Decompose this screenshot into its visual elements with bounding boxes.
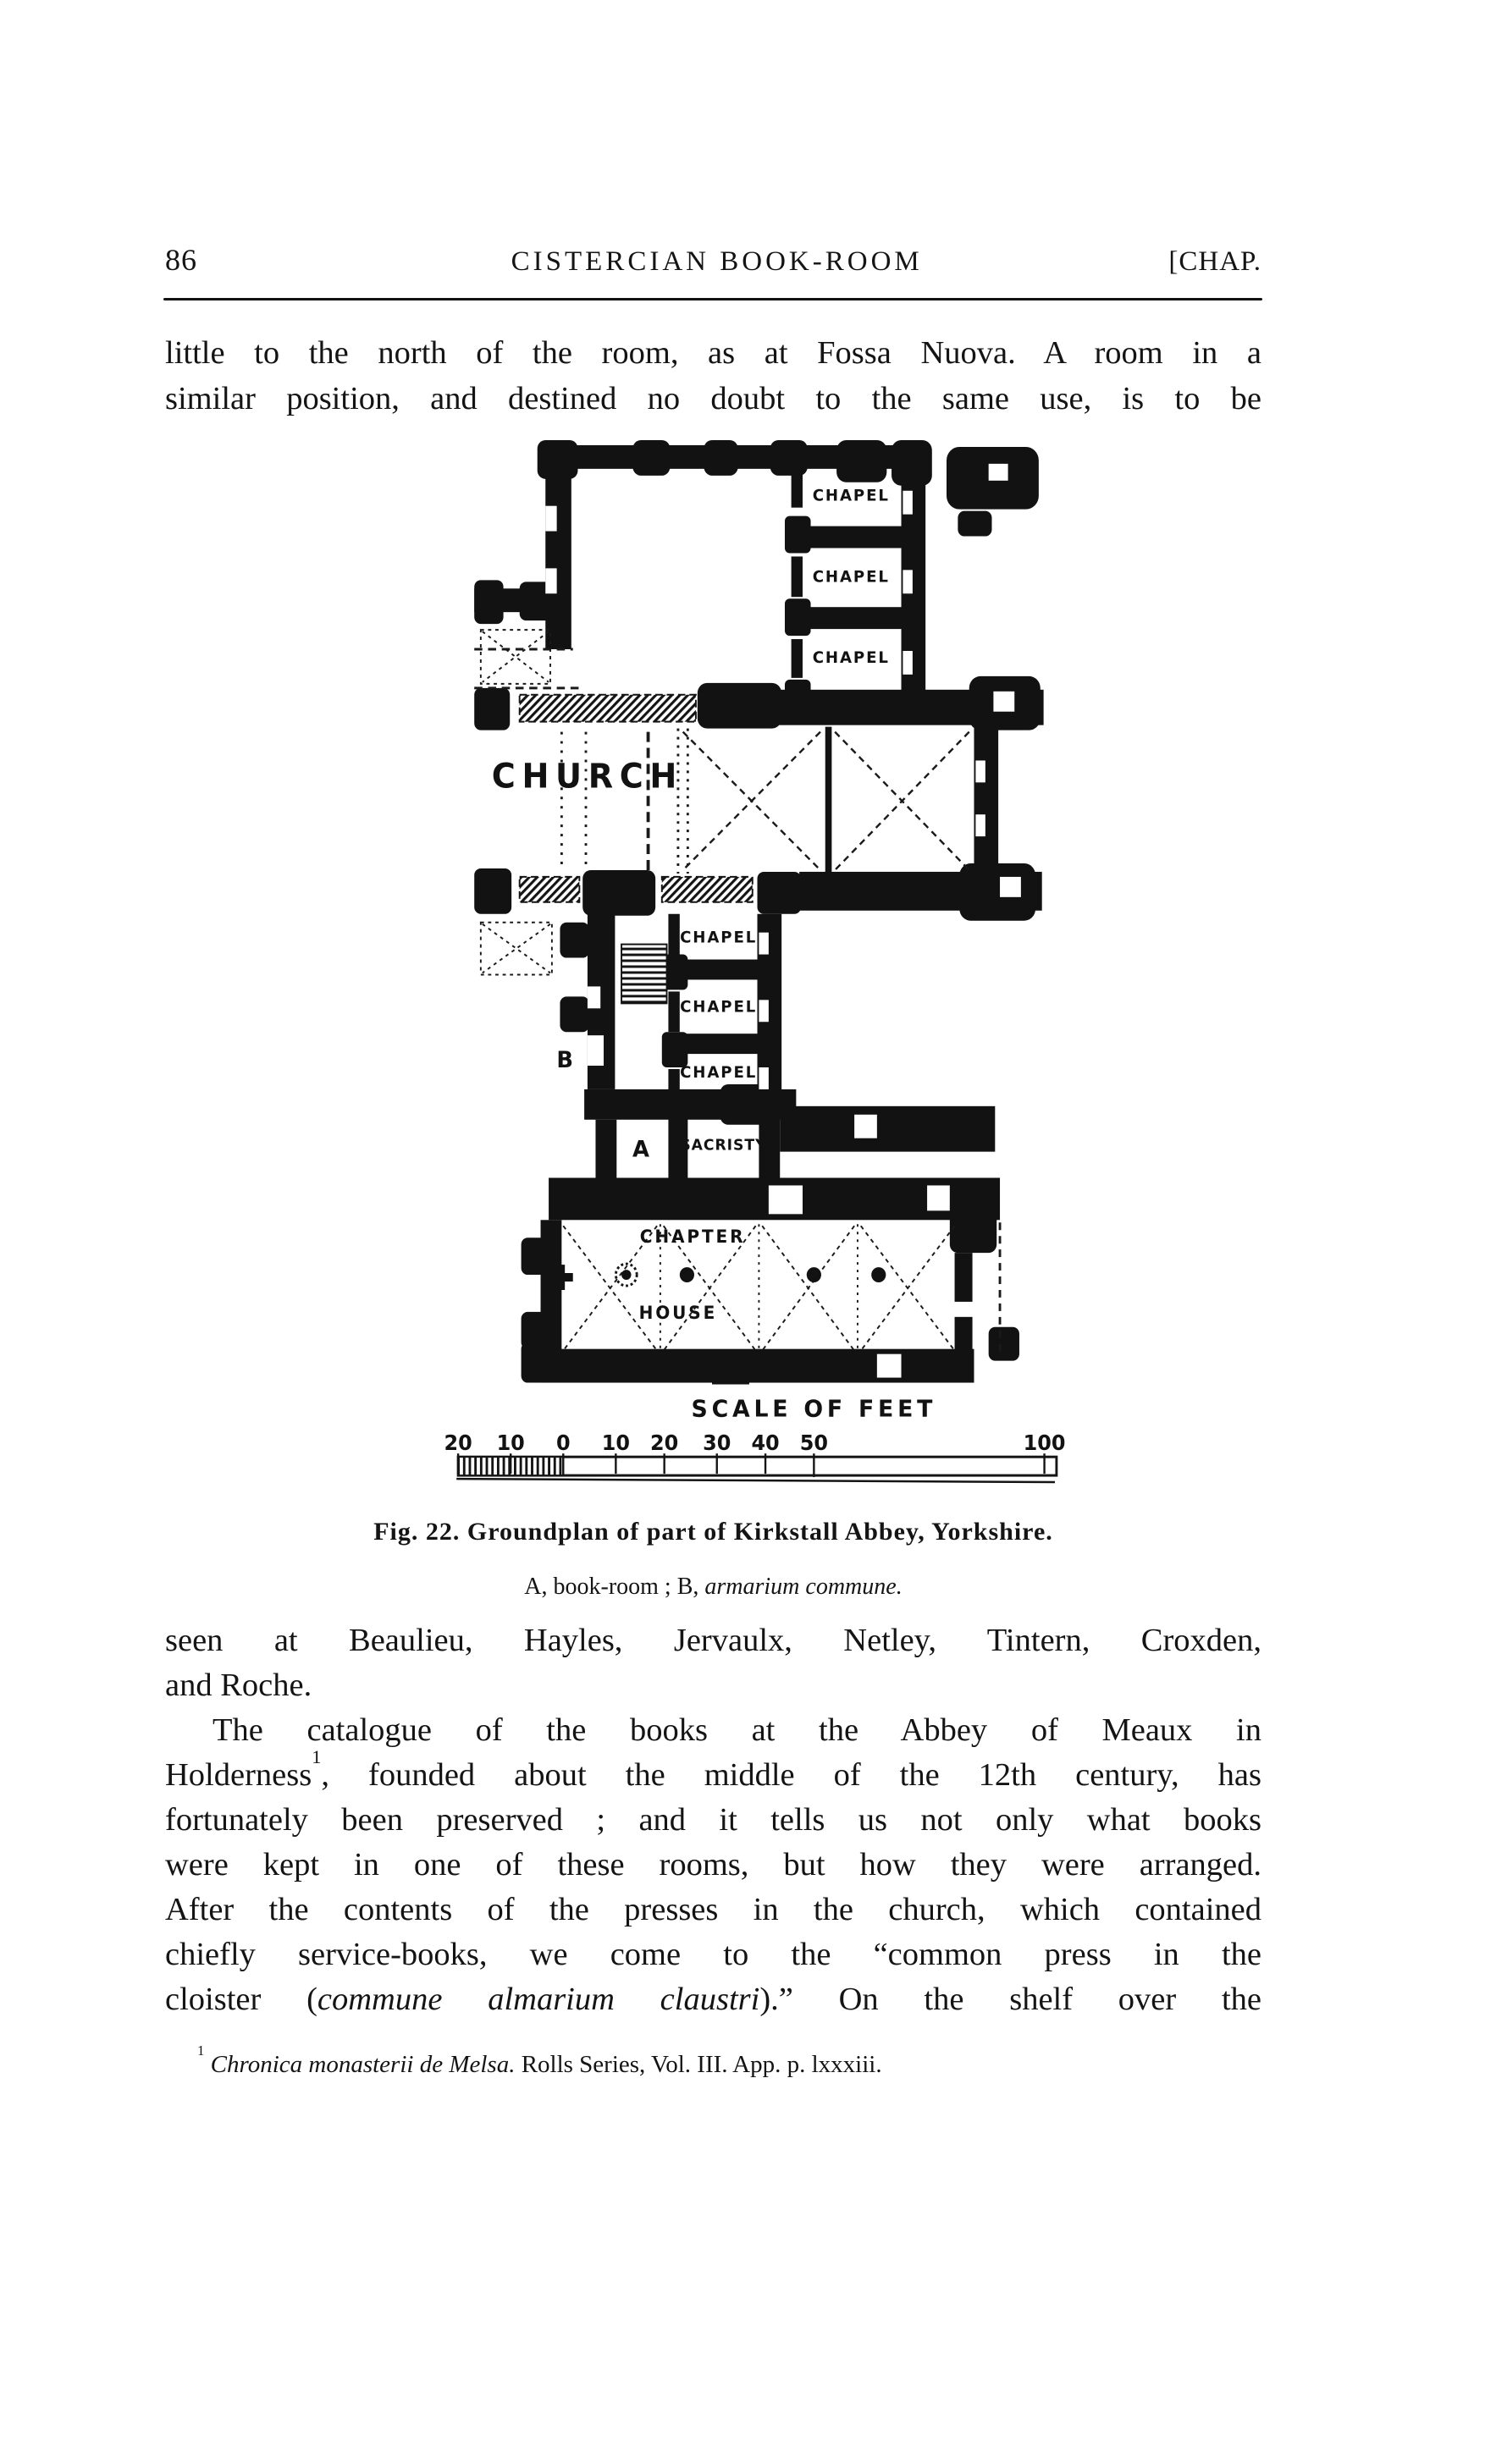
text-line: were kept in one of these rooms, but how… [165,1843,1261,1888]
footnote: 1 Chronica monasterii de Melsa. Rolls Se… [165,2048,1261,2081]
body-text: seen at Beaulieu, Hayles, Jervaulx, Netl… [165,1618,1261,2022]
intro-paragraph: little to the north of the room, as at F… [165,330,1261,422]
sacristy-label: SACRISTY [680,1137,766,1154]
plan-walls [474,440,1043,1385]
running-title: CISTERCIAN BOOK-ROOM [511,246,923,278]
text-line: little to the north of the room, as at F… [165,330,1261,376]
chapel-label-s3: CHAPEL [680,1064,757,1082]
text-segment: were kept in one of these rooms, but how… [165,1847,1261,1882]
text-segment: chiefly service-books, we come to the “c… [165,1937,1261,1972]
text-line: chiefly service-books, we come to the “c… [165,1932,1261,1977]
figure-groundplan: CHURCH CHAPEL CHAPEL CHAPEL CHAPEL CHAPE… [442,440,1073,1494]
text-segment: Rolls Series, Vol. III. App. p. lxxxiii. [515,2051,881,2078]
text-line: seen at Beaulieu, Hayles, Jervaulx, Netl… [165,1618,1261,1663]
text-line: cloister (commune almarium claustri).” O… [165,1977,1261,2022]
text-segment [204,2051,210,2078]
text-line: 1 Chronica monasterii de Melsa. Rolls Se… [165,2048,1261,2081]
scale-tick-30: 30 [703,1430,731,1456]
scale-tick-numbers: 20 10 0 10 20 30 40 50 100 [444,1430,1066,1456]
kirkstall-plan-svg: CHURCH CHAPEL CHAPEL CHAPEL CHAPEL CHAPE… [442,440,1073,1494]
page-number: 86 [165,242,197,278]
text-segment: , founded about the middle of the 12th c… [321,1757,1261,1793]
room-a-label: A [632,1137,650,1163]
scale-tick-10l: 10 [497,1430,525,1456]
text-line: fortunately been preserved ; and it tell… [165,1798,1261,1843]
superscript: 1 [197,2042,204,2059]
text-line: A, book-room ; B, armarium commune. [165,1573,1261,1601]
text-segment: similar position, and destined no doubt … [165,381,1261,416]
text-line: similar position, and destined no doubt … [165,376,1261,422]
text-segment: The catalogue of the books at the Abbey … [213,1712,1261,1748]
text-segment: After the contents of the presses in the… [165,1892,1261,1927]
chapel-label-n1: CHAPEL [813,487,890,504]
church-label: CHURCH [492,758,683,797]
superscript: 1 [312,1746,321,1767]
scale-title: SCALE OF FEET [692,1396,937,1423]
text-segment: cloister ( [165,1982,317,2017]
house-label: HOUSE [639,1302,718,1322]
text-line: Holderness1, founded about the middle of… [165,1753,1261,1798]
text-segment: A, book-room ; B, [524,1574,704,1600]
text-segment: fortunately been preserved ; and it tell… [165,1802,1261,1838]
scale-bar: SCALE OF FEET 20 10 [444,1396,1066,1482]
chapel-label-n3: CHAPEL [813,649,890,667]
text-segment: Holderness [165,1757,312,1793]
chapter-mark: [CHAP. [1168,246,1261,278]
text-segment: ).” On the shelf over the [759,1982,1261,2017]
chapel-label-n2: CHAPEL [813,568,890,586]
text-segment: and Roche. [165,1667,312,1703]
text-line: The catalogue of the books at the Abbey … [165,1708,1261,1753]
chapel-label-s2: CHAPEL [680,998,757,1016]
scale-tick-0: 0 [556,1430,571,1456]
plan-hatched-walls [520,695,753,1004]
text-line: After the contents of the presses in the… [165,1888,1261,1932]
head-rule [163,298,1262,300]
scale-tick-20r: 20 [650,1430,678,1456]
figure-caption: Fig. 22. Groundplan of part of Kirkstall… [165,1518,1261,1546]
room-b-label: B [556,1048,573,1074]
scale-tick-40: 40 [751,1430,779,1456]
scale-tick-50: 50 [800,1430,828,1456]
scale-tick-10r: 10 [602,1430,630,1456]
scale-tick-100: 100 [1024,1430,1066,1456]
plan-openings [545,464,1021,1378]
italic-text: commune almarium claustri [317,1982,759,2017]
figure-caption-key: A, book-room ; B, armarium commune. [165,1573,1261,1601]
italic-text: Chronica monasterii de Melsa. [211,2051,516,2078]
text-segment: little to the north of the room, as at F… [165,335,1261,371]
chapter-label: CHAPTER [640,1226,746,1247]
chapter-house-columns [549,1264,886,1290]
running-head: 86 CISTERCIAN BOOK-ROOM [CHAP. [165,242,1261,278]
chapel-label-s1: CHAPEL [680,929,757,946]
text-line: and Roche. [165,1663,1261,1708]
text-segment: seen at Beaulieu, Hayles, Jervaulx, Netl… [165,1623,1261,1658]
italic-text: armarium commune. [704,1574,902,1600]
scale-tick-20l: 20 [444,1430,472,1456]
book-page: 86 CISTERCIAN BOOK-ROOM [CHAP. little to… [0,0,1485,2464]
